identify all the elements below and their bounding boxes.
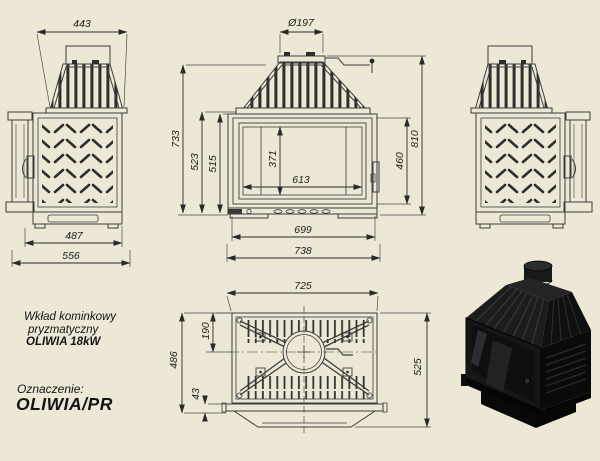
product-name-line3: OLIWIA 18kW <box>26 336 100 348</box>
dim-top-width: 725 <box>281 280 325 292</box>
technical-drawing-sheet: 443 487 556 Ø197 733 523 515 371 613 460… <box>0 0 600 461</box>
firebox-body <box>228 114 377 208</box>
product-name-line2: pryzmatyczny <box>28 324 98 336</box>
door-plan <box>234 411 375 427</box>
dim-front-height-hood: 733 <box>170 117 182 161</box>
dim-side-depth-total: 556 <box>49 250 93 262</box>
dim-front-height-inner: 515 <box>207 142 219 186</box>
product-name-line1: Wkład kominkowy <box>24 311 116 323</box>
air-grille <box>228 209 242 214</box>
designation-value: OLIWIA/PR <box>16 394 113 415</box>
side-view-right <box>471 46 592 228</box>
dim-front-flue-diameter: Ø197 <box>279 17 323 29</box>
dim-top-front-lip: 43 <box>190 372 202 416</box>
dim-front-glass-height: 371 <box>267 137 279 181</box>
dim-top-depth-total: 525 <box>412 345 424 389</box>
dim-front-door-height: 460 <box>394 139 406 183</box>
product-render-3d <box>461 261 591 428</box>
dim-side-depth-top: 443 <box>60 18 104 30</box>
damper-rod <box>325 58 370 65</box>
dim-front-width-total: 738 <box>281 245 325 257</box>
dim-top-flue-offset: 190 <box>200 309 212 353</box>
dim-front-glass-width: 613 <box>279 174 323 186</box>
dim-side-depth-base: 487 <box>52 230 96 242</box>
dim-front-height-total: 810 <box>409 117 421 161</box>
hood-front <box>242 62 367 110</box>
dim-front-height-body: 523 <box>189 140 201 184</box>
dim-top-depth-body: 486 <box>168 338 180 382</box>
dim-front-width-inner: 699 <box>281 224 325 236</box>
top-view <box>182 293 431 433</box>
